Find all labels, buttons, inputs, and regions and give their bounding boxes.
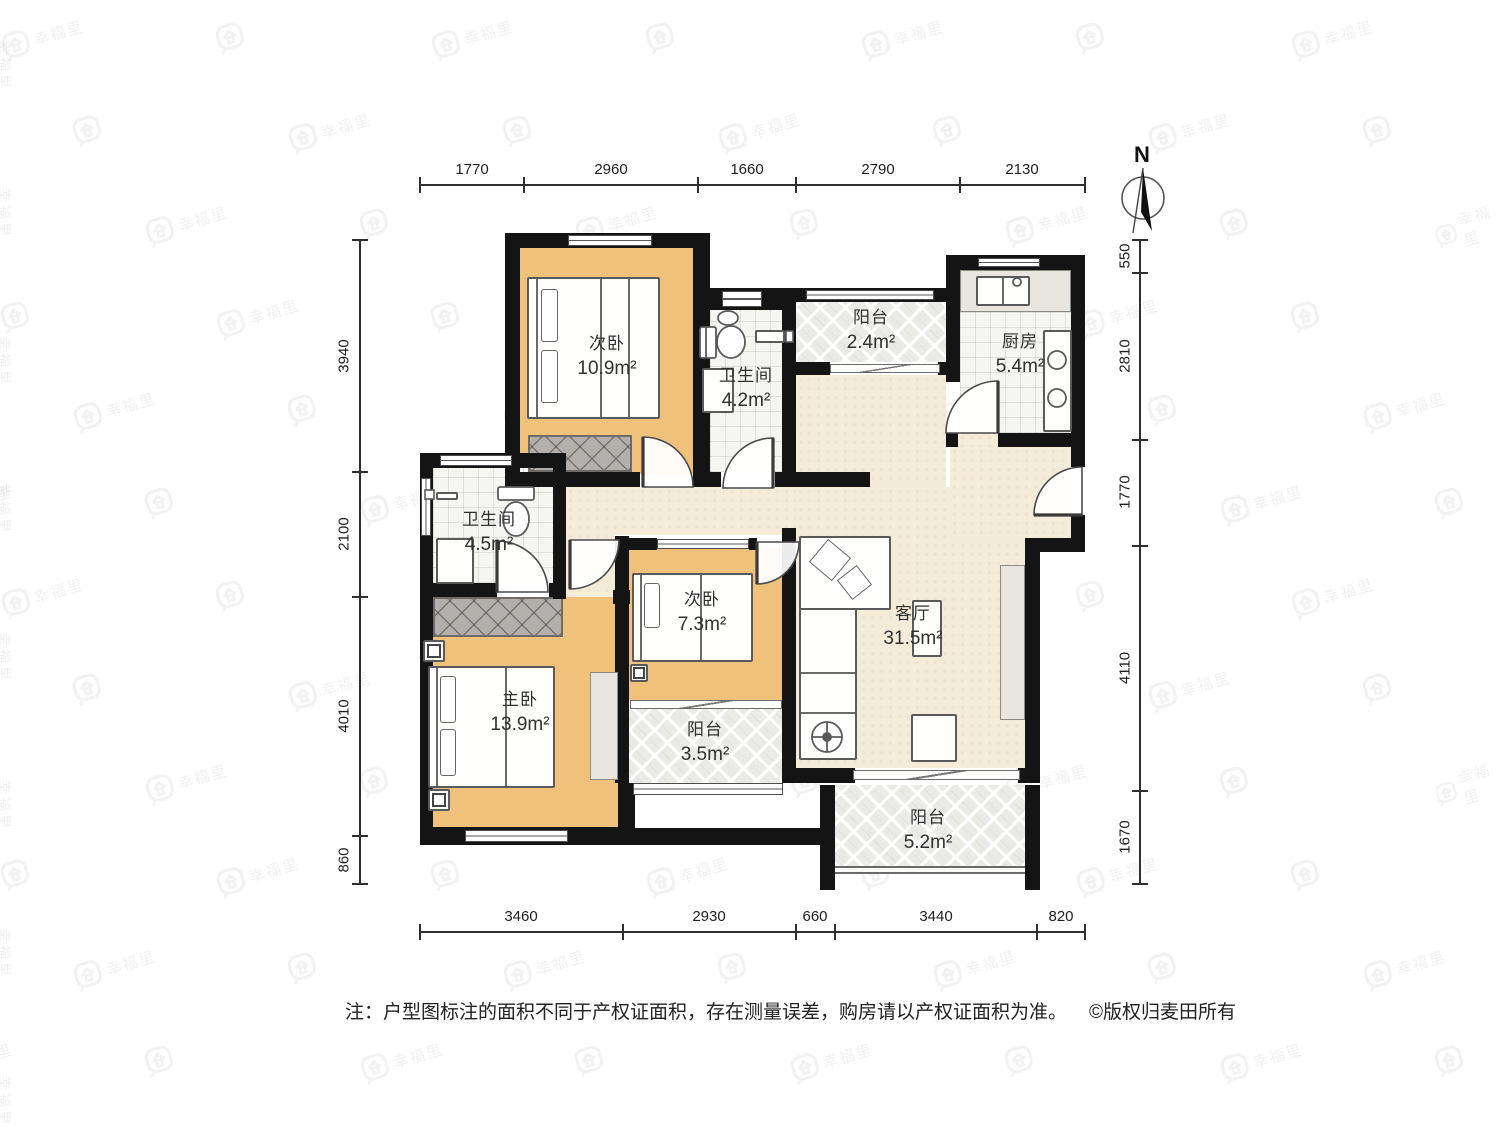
dim-label-top: 2790 [861, 161, 894, 178]
door-bedroom-middle [757, 542, 799, 584]
door-entry [1034, 467, 1082, 515]
dim-label-bottom: 2930 [692, 908, 725, 925]
dim-tick [1132, 439, 1148, 441]
dim-label-bottom: 820 [1048, 908, 1073, 925]
room-name: 次卧 [577, 332, 636, 356]
dim-tick [352, 239, 368, 241]
dim-tick [1132, 883, 1148, 885]
nightstand-icon [432, 793, 446, 807]
dim-label-left: 3940 [336, 339, 353, 372]
door-master [570, 540, 619, 589]
dim-tick [419, 924, 421, 940]
dim-label-bottom: 660 [802, 908, 827, 925]
dim-tick [622, 924, 624, 940]
room-name: 阳台 [847, 306, 896, 330]
dim-label-left: 2100 [336, 517, 353, 550]
dim-tick [1132, 272, 1148, 274]
room-label-balcony-middle: 阳台 3.5m² [681, 718, 730, 768]
copyright-text: ©版权归麦田所有 [1089, 1002, 1236, 1023]
dim-tick [523, 177, 525, 193]
dim-label-bottom: 3460 [504, 908, 537, 925]
room-area: 5.4m² [996, 354, 1045, 380]
room-area: 2.4m² [847, 330, 896, 356]
floorplan: 次卧 10.9m² 卫生间 4.2m² 阳台 2.4m² 厨房 5.4m² 卫生… [0, 0, 1500, 1125]
dim-tick [795, 924, 797, 940]
dim-label-top: 1770 [455, 161, 488, 178]
room-area: 4.5m² [462, 532, 516, 558]
nightstand-icon [427, 644, 441, 658]
dim-tick [352, 471, 368, 473]
dim-tick [1132, 545, 1148, 547]
door-bedroom-top [643, 437, 693, 487]
room-name: 阳台 [904, 806, 953, 830]
room-label-bathroom-left: 卫生间 4.5m² [462, 508, 516, 558]
room-label-master: 主卧 13.9m² [490, 688, 549, 738]
dim-tick [352, 596, 368, 598]
dim-label-right: 2810 [1117, 339, 1134, 372]
dim-label-right: 4110 [1117, 652, 1134, 684]
note-text: 注：户型图标注的面积不同于产权证面积，存在测量误差，购房请以产权证面积为准。 [345, 1002, 1067, 1023]
dim-tick [1084, 924, 1086, 940]
dim-label-right: 550 [1117, 243, 1134, 268]
room-label-balcony-bottom: 阳台 5.2m² [904, 806, 953, 856]
room-area: 7.3m² [678, 612, 727, 638]
room-area: 31.5m² [883, 626, 942, 652]
room-label-bedroom-top: 次卧 10.9m² [577, 332, 636, 382]
room-label-kitchen: 厨房 5.4m² [996, 330, 1045, 380]
dim-tick [352, 883, 368, 885]
compass-icon [1122, 168, 1164, 233]
dim-label-top: 2130 [1005, 161, 1038, 178]
room-label-bathroom-top: 卫生间 4.2m² [719, 364, 773, 414]
dim-tick [1132, 790, 1148, 792]
dim-tick [697, 177, 699, 193]
dim-label-left: 860 [336, 847, 353, 872]
dim-line-top [420, 184, 1086, 186]
room-label-balcony-top: 阳台 2.4m² [847, 306, 896, 356]
dim-tick [419, 177, 421, 193]
nightstand-icon [633, 667, 645, 679]
disclaimer-note: 注：户型图标注的面积不同于产权证面积，存在测量误差，购房请以产权证面积为准。©版… [345, 997, 1236, 1024]
dim-line-bottom [420, 931, 1086, 933]
room-area: 5.2m² [904, 830, 953, 856]
room-area: 13.9m² [490, 712, 549, 738]
dim-line-left [359, 240, 361, 884]
toilet-bathroom-top [700, 311, 745, 358]
dim-tick [1036, 924, 1038, 940]
dim-tick [352, 835, 368, 837]
dim-tick [1084, 177, 1086, 193]
room-label-bedroom-middle: 次卧 7.3m² [678, 588, 727, 638]
dim-label-left: 4010 [336, 699, 353, 732]
floor-lamp [812, 722, 842, 752]
dim-label-bottom: 3440 [919, 908, 952, 925]
room-name: 客厅 [883, 602, 942, 626]
floorplan-page: { "compass": { "north_label": "N" }, "ro… [0, 0, 1500, 1125]
room-name: 卫生间 [719, 364, 773, 388]
dim-label-right: 1770 [1117, 475, 1134, 508]
door-bathroom-top [723, 438, 773, 488]
dim-label-top: 1660 [730, 161, 763, 178]
dim-tick [959, 177, 961, 193]
dim-tick [795, 177, 797, 193]
dim-label-top: 2960 [594, 161, 627, 178]
room-area: 10.9m² [577, 356, 636, 382]
dim-line-right [1139, 240, 1141, 884]
room-label-living: 客厅 31.5m² [883, 602, 942, 652]
room-name: 厨房 [996, 330, 1045, 354]
room-name: 次卧 [678, 588, 727, 612]
north-label: N [1134, 142, 1150, 168]
door-kitchen [946, 381, 998, 433]
room-name: 阳台 [681, 718, 730, 742]
dim-tick [1132, 239, 1148, 241]
room-area: 4.2m² [719, 388, 773, 414]
room-name: 卫生间 [462, 508, 516, 532]
room-area: 3.5m² [681, 742, 730, 768]
dim-tick [834, 924, 836, 940]
door-arcs [497, 381, 1082, 592]
dim-label-right: 1670 [1117, 820, 1134, 853]
room-name: 主卧 [490, 688, 549, 712]
